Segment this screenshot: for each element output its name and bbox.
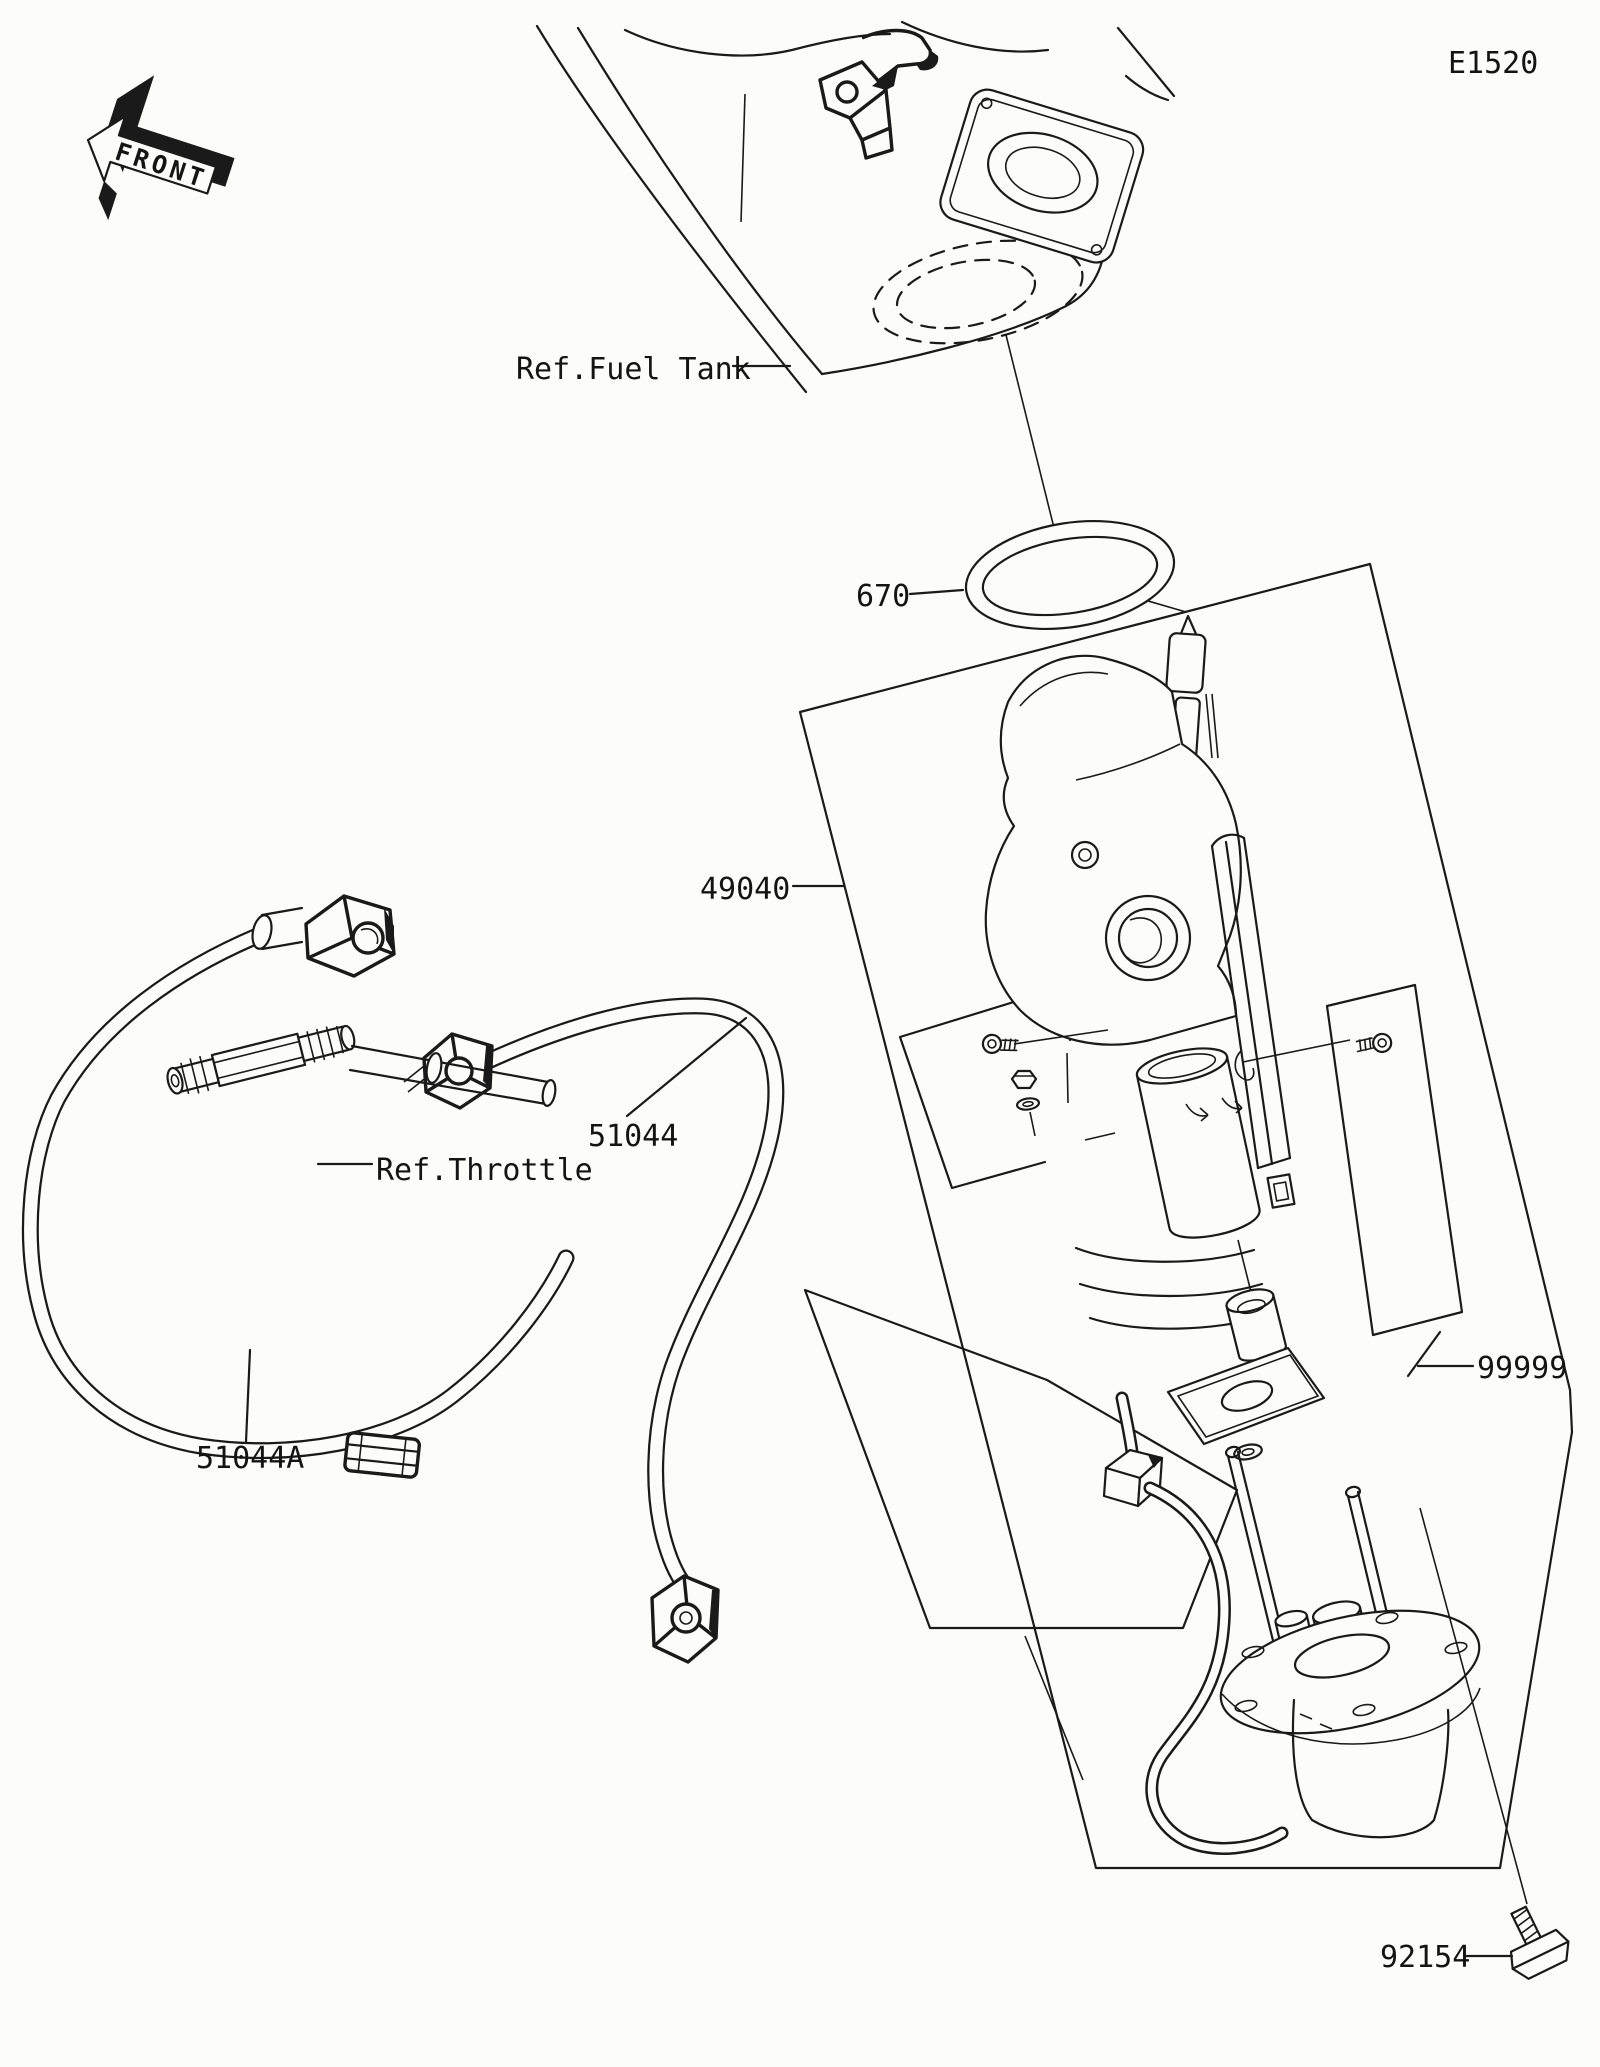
part-number-99999: 99999 [1477, 1351, 1567, 1386]
flange-drawing [1209, 1446, 1491, 1838]
screw-right-drawing [1243, 1033, 1392, 1062]
bolt-drawing [1420, 1508, 1575, 1983]
nut-drawing [1012, 1071, 1036, 1088]
fuel-hose-drawing [486, 1006, 776, 1594]
fuel-hose-a-drawing [30, 934, 566, 1451]
part-number-92154: 92154 [1380, 1940, 1470, 1975]
clamp-leader-line [741, 94, 745, 222]
part-number-670: 670 [856, 579, 910, 614]
parts-diagram-page: FRONT E1520 Ref.Fuel Tank 670 49040 5104… [0, 0, 1600, 2067]
washer-drawing [1016, 1097, 1039, 1111]
fuel-pump-parts-diagram: FRONT E1520 Ref.Fuel Tank 670 49040 5104… [0, 0, 1600, 2067]
front-arrow: FRONT [66, 62, 251, 251]
part-number-49040: 49040 [700, 872, 790, 907]
quick-connector-top [306, 896, 394, 976]
tank-clamp-drawing [820, 31, 938, 159]
t-fitting-drawing [164, 1019, 358, 1100]
quick-connector-mid [404, 1034, 492, 1108]
strainer-drawing [1168, 1285, 1324, 1462]
lower-assembly-box [805, 1290, 1237, 1780]
page-code-label: E1520 [1448, 46, 1538, 81]
part-number-51044A: 51044A [196, 1441, 304, 1476]
hose-clamp-drawing [344, 1432, 420, 1477]
ref-throttle-label: Ref.Throttle [376, 1153, 593, 1188]
quick-connector-elbow [652, 1576, 718, 1662]
hardware-box-right [1327, 985, 1462, 1376]
ref-fuel-tank-label: Ref.Fuel Tank [516, 352, 751, 387]
fuel-pump-drawing [986, 616, 1295, 1329]
tank-pump-cover-drawing [936, 85, 1148, 267]
part-number-51044: 51044 [588, 1119, 678, 1154]
oring-drawing [958, 335, 1186, 643]
hose-sleeve-drawing [250, 908, 302, 950]
fuel-tank-drawing [537, 22, 1174, 392]
